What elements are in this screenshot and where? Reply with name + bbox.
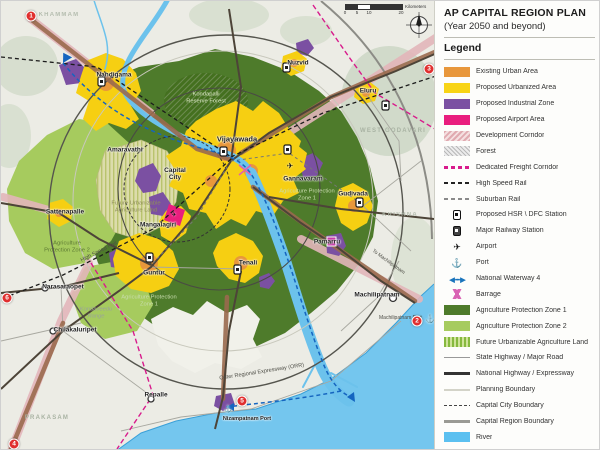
swatch-airport-area: [444, 115, 470, 125]
state-highway-line-icon: [444, 357, 470, 358]
legend-item-suburban-rail: Suburban Rail: [444, 191, 595, 207]
legend-item-existing-urban: Existing Urban Area: [444, 64, 595, 80]
major-railway-station-icon: [444, 226, 470, 236]
route-marker-2: 2: [412, 316, 423, 327]
suburban-rail-line-icon: [444, 198, 470, 200]
legend-item-airport-area: Proposed Airport Area: [444, 112, 595, 128]
legend-item-agri-zone1: Agriculture Protection Zone 1: [444, 302, 595, 318]
scale-unit-label: Kilometers: [405, 4, 426, 9]
legend-item-river: River: [444, 429, 595, 445]
legend-item-capital-region-boundary: Capital Region Boundary: [444, 414, 595, 430]
legend-item-agri-zone2: Agriculture Protection Zone 2: [444, 318, 595, 334]
scale-tick-0: 0: [344, 10, 347, 15]
legend-item-industrial: Proposed Industrial Zone: [444, 96, 595, 112]
legend-item-hsr-dfc-station: Proposed HSR \ DFC Station: [444, 207, 595, 223]
swatch-existing-urban: [444, 67, 470, 77]
legend-item-proposed-urban: Proposed Urbanized Area: [444, 80, 595, 96]
swatch-agri-zone1: [444, 305, 470, 315]
divider: [444, 37, 595, 38]
route-marker-3: 3: [424, 64, 435, 75]
hsr-dfc-station-icon: [444, 210, 470, 220]
map-title: AP CAPITAL REGION PLAN: [444, 7, 595, 19]
freight-corridor-line-icon: [444, 166, 470, 169]
legend-item-port: ⚓ Port: [444, 255, 595, 271]
capital-region-boundary-line-icon: [444, 420, 470, 423]
swatch-river: [444, 432, 470, 442]
scale-bar: 0 5 10 20 Kilometers: [345, 4, 431, 16]
legend-item-national-highway: National Highway / Expressway: [444, 366, 595, 382]
ap-capital-region-plan-screenshot: Nandigama Nuzvid Eluru Vijayawada Gannav…: [0, 0, 600, 450]
map-subtitle: (Year 2050 and beyond): [444, 21, 595, 32]
legend-item-barrage: Barrage: [444, 286, 595, 302]
route-marker-1: 1: [26, 11, 37, 22]
legend-item-national-waterway: ◀╍╍▶ National Waterway 4: [444, 271, 595, 287]
swatch-future-urbanizable: [444, 337, 470, 347]
swatch-forest: [444, 146, 470, 156]
national-highway-line-icon: [444, 372, 470, 375]
legend-item-development-corridor: Development Corridor: [444, 128, 595, 144]
barrage-icon: [444, 289, 470, 299]
legend-item-major-railway-station: Major Railway Station: [444, 223, 595, 239]
legend-item-high-speed-rail: High Speed Rail: [444, 175, 595, 191]
swatch-agri-zone2: [444, 321, 470, 331]
high-speed-rail-line-icon: [444, 182, 470, 185]
national-waterway-icon: ◀╍╍▶: [444, 274, 470, 284]
legend-item-airport: ✈ Airport: [444, 239, 595, 255]
legend-item-future-urbanizable: Future Urbanizable Agriculture Land: [444, 334, 595, 350]
port-icon: ⚓: [444, 258, 470, 268]
scale-tick-5: 5: [356, 10, 359, 15]
legend-item-capital-city-boundary: Capital City Boundary: [444, 398, 595, 414]
map-canvas: Nandigama Nuzvid Eluru Vijayawada Gannav…: [1, 1, 434, 450]
legend-item-freight-corridor: Dedicated Freight Corridor: [444, 159, 595, 175]
planning-boundary-line-icon: [444, 389, 470, 391]
route-marker-5: 5: [237, 396, 248, 407]
swatch-industrial: [444, 99, 470, 109]
scale-tick-20: 20: [398, 10, 403, 15]
pamarru-station: [327, 237, 336, 246]
airport-icon: ✈: [444, 242, 470, 252]
route-marker-4: 4: [9, 439, 20, 450]
scale-tick-10: 10: [366, 10, 371, 15]
capital-city-boundary-line-icon: [444, 405, 470, 407]
legend-item-forest: Forest: [444, 143, 595, 159]
legend-heading: Legend: [444, 42, 595, 54]
legend-item-planning-boundary: Planning Boundary: [444, 382, 595, 398]
map-artwork: [1, 1, 434, 450]
divider: [444, 59, 595, 60]
swatch-development-corridor: [444, 131, 470, 141]
swatch-proposed-urban: [444, 83, 470, 93]
legend-panel: AP CAPITAL REGION PLAN (Year 2050 and be…: [434, 1, 600, 450]
legend-item-state-highway: State Highway / Major Road: [444, 350, 595, 366]
route-marker-6: 6: [2, 293, 13, 304]
